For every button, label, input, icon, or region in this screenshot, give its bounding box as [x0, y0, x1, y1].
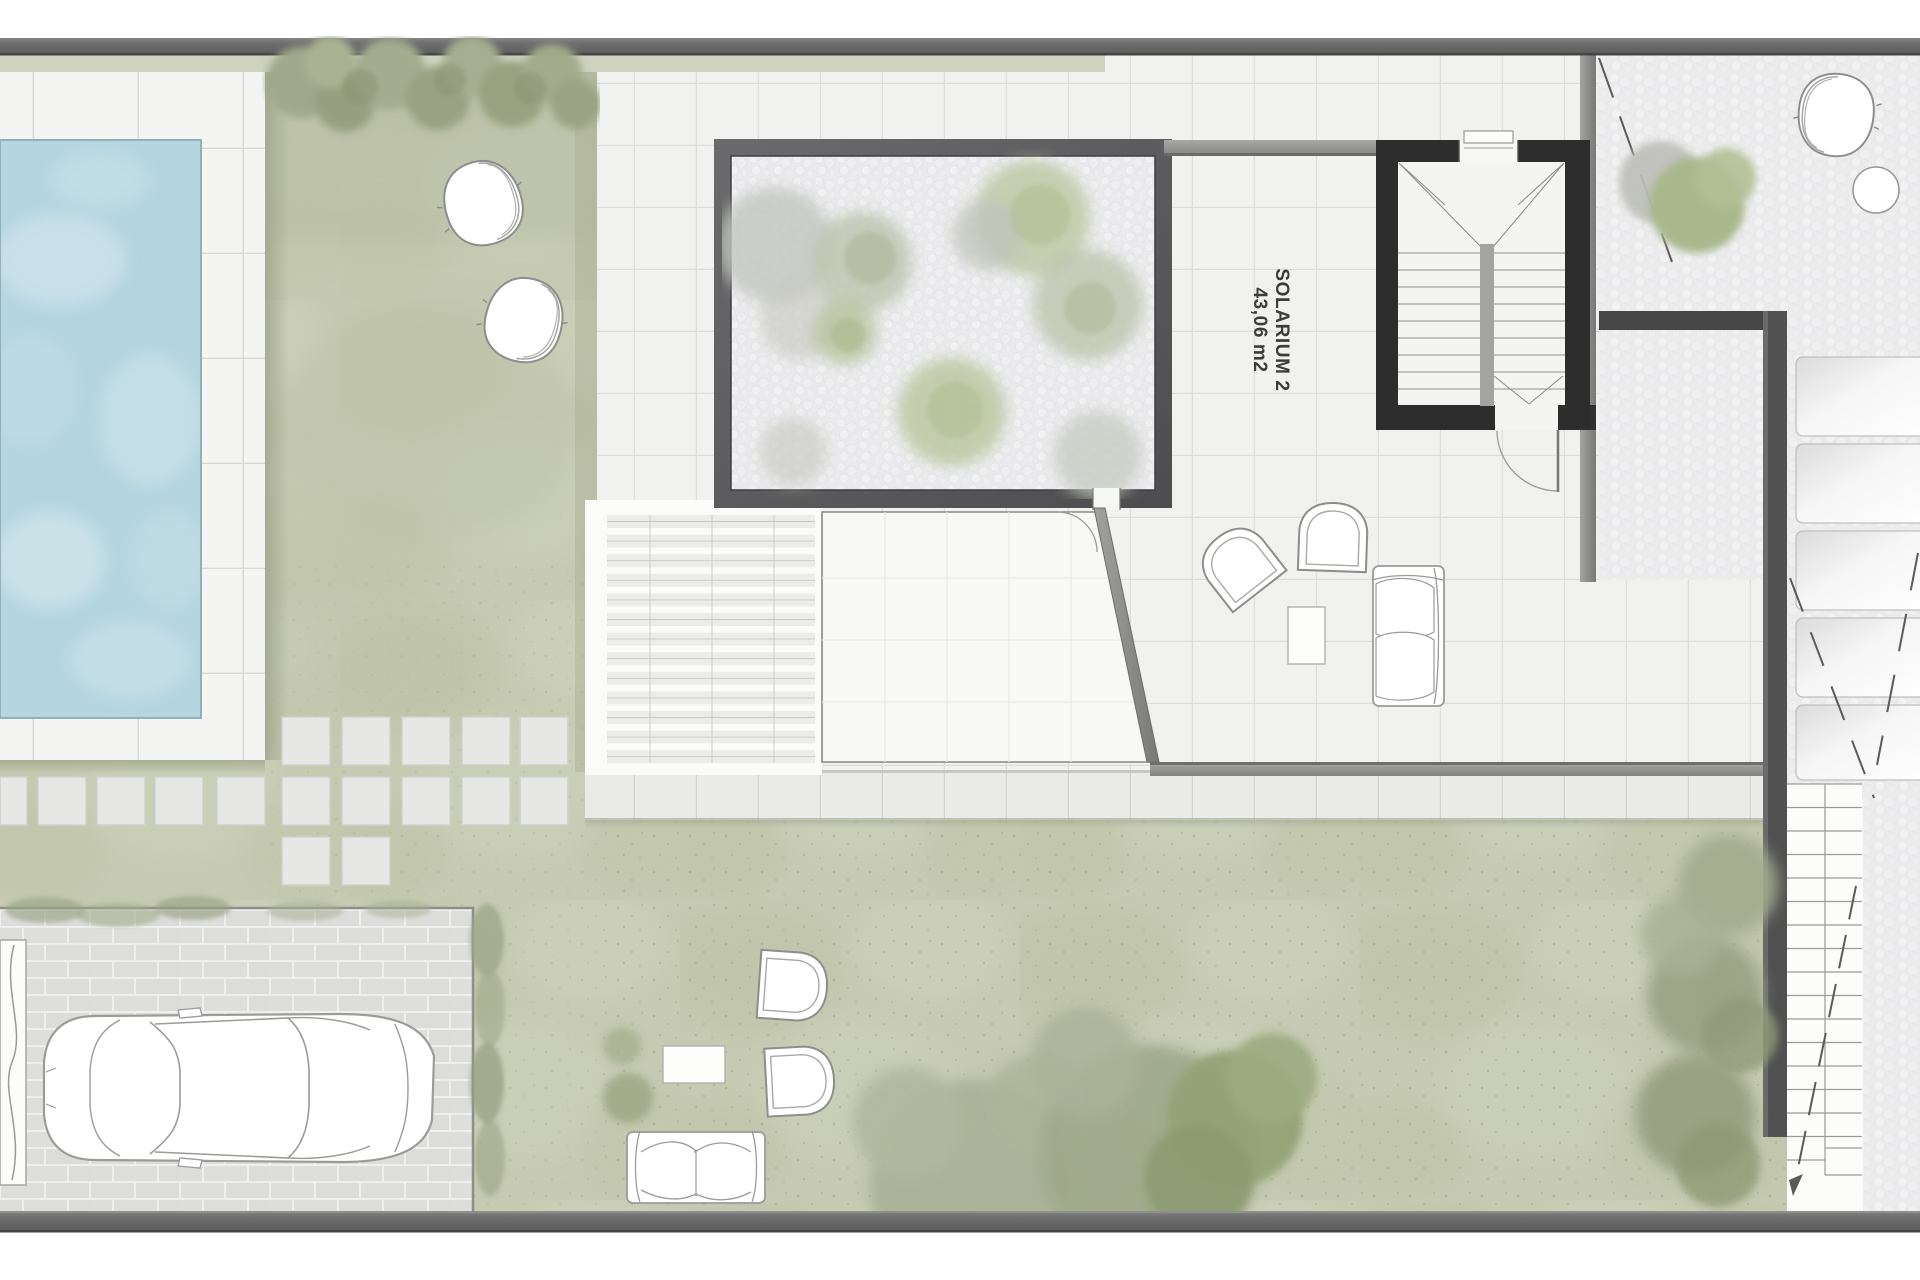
svg-text:43,06 m2: 43,06 m2	[1249, 287, 1270, 372]
svg-text:SOLARIUM 2: SOLARIUM 2	[1271, 268, 1292, 391]
